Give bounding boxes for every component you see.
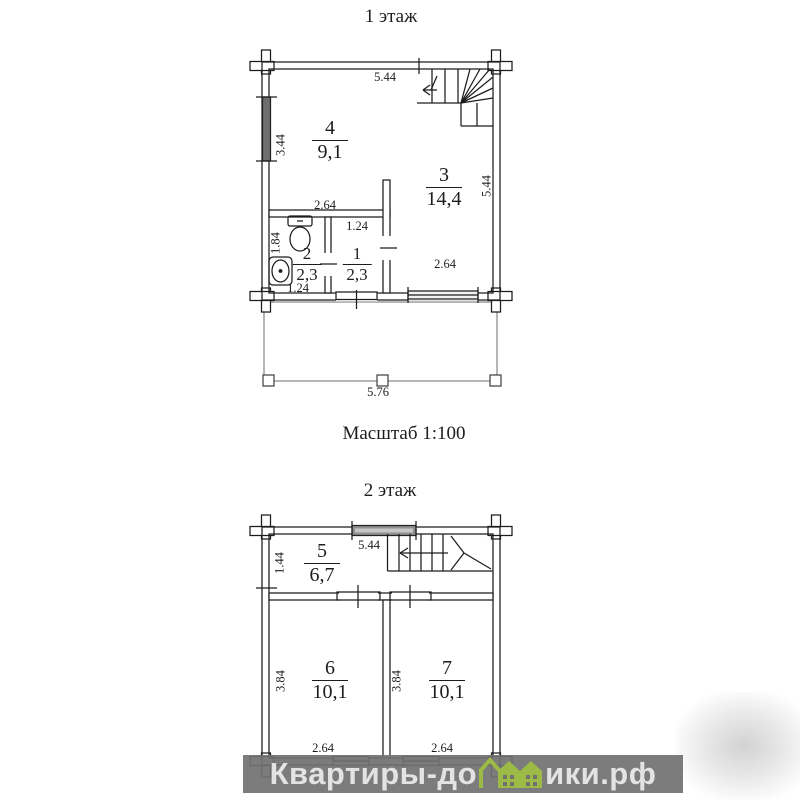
room2-number: 2 [293, 245, 322, 265]
corner-posts-floor2 [250, 515, 512, 777]
floor2-dim-left: 1.44 [273, 552, 288, 574]
floor2-dim-room7-w: 2.64 [431, 741, 453, 756]
floor1-dim-bath-height: 1.84 [269, 232, 284, 254]
floor1-dim-top: 5.44 [374, 70, 396, 85]
floor1-dim-hall: 2.64 [314, 198, 336, 213]
terrace-outline [264, 302, 497, 381]
floor1-dim-window: 2.64 [434, 257, 456, 272]
floor1-dim-right: 5.44 [480, 175, 495, 197]
floor1-dim-left: 3.44 [274, 134, 289, 156]
room5-area: 6,7 [310, 565, 335, 586]
floor1-dim-terrace: 5.76 [367, 385, 389, 400]
watermark-text-prefix: Квартиры-до [270, 756, 477, 792]
room4-label: 4 9,1 [312, 118, 348, 163]
stairs-floor1 [417, 58, 493, 126]
outer-walls-floor2 [262, 527, 500, 765]
room1-area: 2,3 [346, 266, 367, 284]
room7-number: 7 [429, 658, 465, 681]
watermark-banner: Квартиры-до ики.рф [243, 755, 683, 793]
watermark-text-suffix: ики.рф [545, 756, 656, 792]
room7-area: 10,1 [430, 682, 465, 703]
corner-shadow [676, 692, 800, 800]
room1-label: 1 2,3 [343, 245, 372, 284]
room2-label: 2 2,3 [293, 245, 322, 284]
room3-number: 3 [426, 165, 462, 188]
floor1-title: 1 этаж [365, 6, 418, 28]
floor1-dim-bath-width: 1.24 [287, 281, 309, 296]
floor1-dim-room1-top: 1.24 [346, 219, 368, 234]
floor2-dim-room6-w: 2.64 [312, 741, 334, 756]
room4-area: 9,1 [318, 142, 343, 163]
room4-number: 4 [312, 118, 348, 141]
scale-label: Масштаб 1:100 [342, 423, 465, 445]
room5-label: 5 6,7 [304, 541, 340, 586]
house-icon [478, 756, 544, 790]
room1-number: 1 [343, 245, 372, 265]
floorplan-page: 1 этаж 5.44 3.44 5.44 4 9,1 3 14,4 2.64 … [0, 0, 800, 800]
stairs-floor2 [388, 534, 494, 571]
room6-label: 6 10,1 [312, 658, 348, 703]
room6-number: 6 [312, 658, 348, 681]
interior-walls-floor1 [269, 180, 390, 293]
room3-area: 14,4 [427, 189, 462, 210]
room7-label: 7 10,1 [429, 658, 465, 703]
room3-label: 3 14,4 [426, 165, 462, 210]
room5-number: 5 [304, 541, 340, 564]
floor2-dim-top: 5.44 [358, 538, 380, 553]
floor2-dim-room7-h: 3.84 [390, 670, 405, 692]
floor2-dim-room6-h: 3.84 [274, 670, 289, 692]
floor2-title: 2 этаж [364, 480, 417, 502]
room6-area: 10,1 [313, 682, 348, 703]
